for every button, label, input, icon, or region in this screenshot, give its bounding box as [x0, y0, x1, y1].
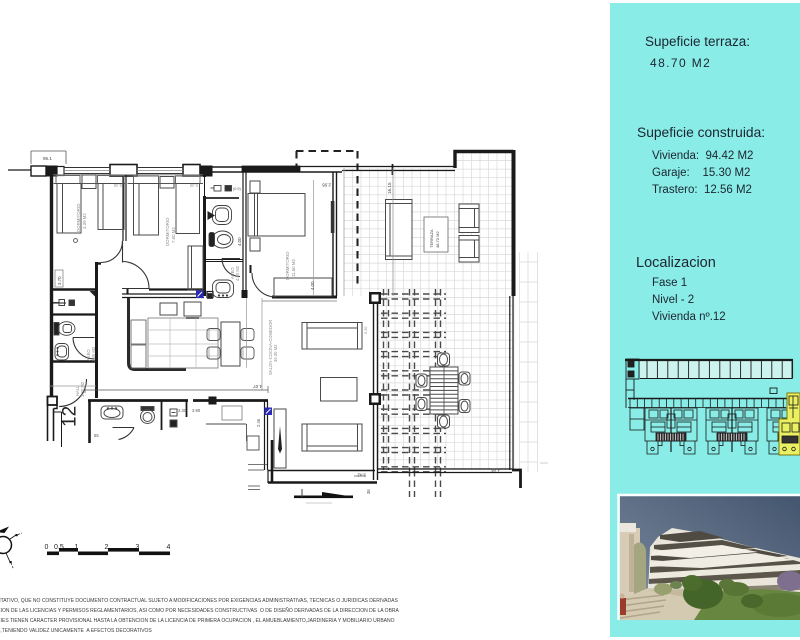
svg-text:4: 4	[167, 544, 171, 551]
svg-text:2.46: 2.46	[256, 418, 261, 427]
svg-text:4.00: 4.00	[237, 237, 242, 246]
svg-text:4.90 M2: 4.90 M2	[235, 265, 240, 281]
svg-text:3: 3	[136, 544, 140, 551]
svg-text:36: 36	[366, 489, 371, 494]
svg-text:3.70: 3.70	[57, 276, 62, 285]
svg-text:4.00: 4.00	[310, 281, 315, 290]
svg-text:0.5: 0.5	[54, 544, 64, 551]
svg-text:3.90: 3.90	[192, 408, 201, 413]
svg-text:0: 0	[45, 544, 49, 551]
svg-text:2.30: 2.30	[178, 408, 187, 413]
svg-text:3.39 M2: 3.39 M2	[82, 213, 87, 229]
svg-text:16.15: 16.15	[387, 182, 392, 194]
svg-text:48.70 M2: 48.70 M2	[435, 231, 440, 248]
svg-text:3.80 M2: 3.80 M2	[80, 381, 85, 397]
svg-text:2.95: 2.95	[322, 183, 331, 188]
svg-text:DORMITORIO: DORMITORIO	[76, 203, 81, 232]
svg-text:95.1: 95.1	[43, 156, 52, 161]
svg-text:35.30 M2: 35.30 M2	[273, 344, 278, 362]
svg-text:0.20: 0.20	[364, 327, 368, 334]
svg-text:DORMITORIO: DORMITORIO	[165, 217, 170, 246]
svg-text:1: 1	[75, 544, 79, 551]
svg-text:4.05: 4.05	[491, 468, 500, 473]
svg-text:3.35 M2: 3.35 M2	[91, 346, 96, 362]
svg-text:0.40: 0.40	[113, 183, 122, 188]
svg-text:55: 55	[94, 433, 99, 438]
svg-text:3.42: 3.42	[357, 473, 366, 478]
svg-text:4.07: 4.07	[253, 384, 262, 389]
svg-text:7.60 M2: 7.60 M2	[171, 227, 176, 243]
svg-text:12: 12	[60, 406, 81, 427]
svg-text:11.50 M2: 11.50 M2	[291, 258, 296, 277]
svg-text:(0.9): (0.9)	[233, 187, 242, 191]
svg-text:2: 2	[105, 544, 109, 551]
svg-text:0.40: 0.40	[189, 183, 198, 188]
svg-text:DORMITORIO: DORMITORIO	[285, 251, 290, 280]
svg-text:TERRAZA: TERRAZA	[429, 229, 434, 248]
